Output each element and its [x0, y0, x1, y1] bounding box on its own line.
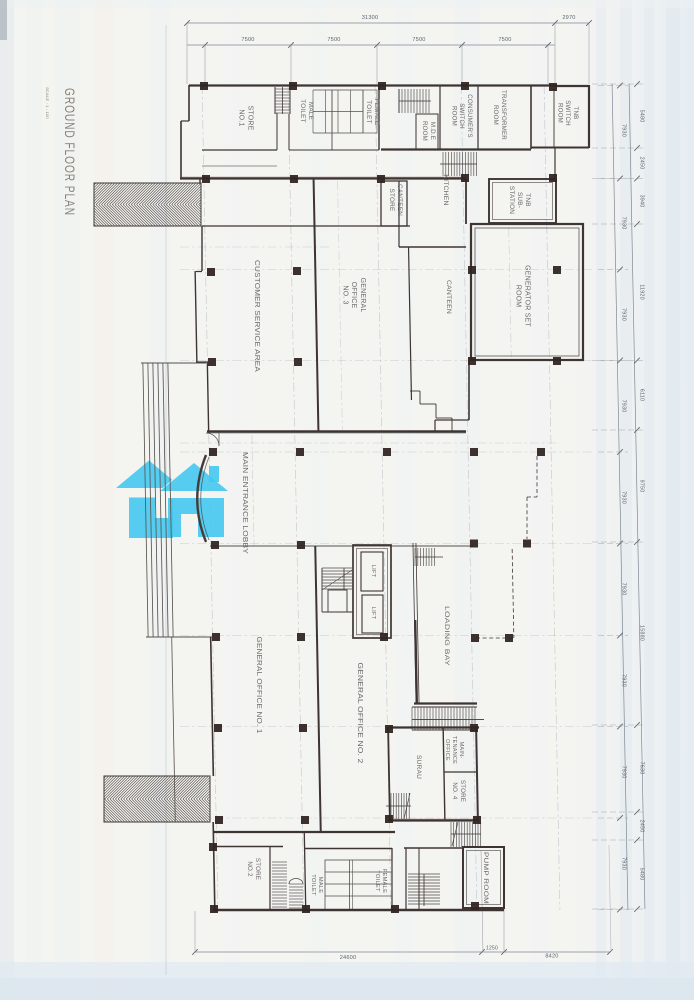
svg-text:7930: 7930	[621, 400, 627, 413]
svg-text:M.D.E: M.D.E	[429, 122, 436, 140]
svg-text:TNB: TNB	[524, 193, 531, 206]
svg-text:7500: 7500	[412, 37, 425, 43]
svg-text:STORE: STORE	[254, 858, 261, 880]
svg-text:5480: 5480	[639, 868, 645, 881]
svg-text:2970: 2970	[562, 15, 575, 21]
svg-text:TOILET: TOILET	[365, 100, 372, 123]
svg-text:1250: 1250	[486, 946, 498, 952]
svg-text:OFFICE: OFFICE	[350, 282, 357, 309]
svg-text:PUMP ROOM: PUMP ROOM	[482, 852, 489, 904]
svg-text:2450: 2450	[639, 820, 645, 833]
svg-text:TOILET: TOILET	[310, 874, 316, 896]
svg-text:TRANSFORMER: TRANSFORMER	[500, 90, 507, 140]
svg-text:6110: 6110	[639, 389, 645, 401]
svg-text:8420: 8420	[545, 954, 558, 960]
svg-text:ROOM: ROOM	[450, 106, 457, 126]
svg-text:KITCHEN: KITCHEN	[442, 174, 449, 205]
svg-text:3940: 3940	[639, 195, 645, 208]
svg-text:ROOM: ROOM	[421, 121, 428, 141]
svg-text:7930: 7930	[621, 308, 627, 321]
svg-text:24600: 24600	[340, 955, 357, 961]
svg-text:CUSTOMER SERVICE AREA: CUSTOMER SERVICE AREA	[253, 260, 262, 372]
svg-text:7500: 7500	[241, 37, 254, 43]
svg-text:SURAU: SURAU	[415, 755, 422, 779]
svg-text:STORE: STORE	[246, 106, 253, 131]
svg-text:SUB-: SUB-	[516, 192, 523, 208]
svg-text:2450: 2450	[639, 157, 645, 170]
svg-text:7630: 7630	[639, 762, 645, 775]
svg-text:7930: 7930	[621, 491, 627, 504]
svg-text:FEMALE: FEMALE	[373, 99, 380, 126]
svg-text:ROOM: ROOM	[515, 285, 522, 308]
svg-text:FEMALE: FEMALE	[381, 869, 387, 893]
svg-text:CANTEEN: CANTEEN	[445, 280, 452, 314]
svg-text:SWITCH: SWITCH	[564, 100, 571, 126]
svg-text:CONSUMER'S: CONSUMER'S	[466, 94, 473, 137]
svg-text:STORE: STORE	[459, 780, 466, 802]
svg-text:SWITCH: SWITCH	[458, 103, 465, 129]
svg-text:NO. 3: NO. 3	[341, 285, 348, 304]
svg-text:7930: 7930	[621, 674, 627, 687]
svg-text:NO.1: NO.1	[238, 109, 245, 126]
svg-text:NO.2: NO.2	[246, 861, 253, 877]
svg-text:LOADING BAY: LOADING BAY	[443, 606, 450, 666]
svg-text:LIFT: LIFT	[370, 565, 376, 578]
svg-text:ROOM: ROOM	[556, 103, 563, 123]
svg-text:7930: 7930	[621, 766, 627, 779]
svg-text:TENANCE: TENANCE	[451, 736, 457, 764]
svg-text:MAIN ENTRANCE LOBBY: MAIN ENTRANCE LOBBY	[241, 452, 248, 554]
svg-text:31300: 31300	[362, 15, 379, 21]
svg-text:7500: 7500	[498, 37, 511, 43]
svg-text:MALE: MALE	[307, 102, 314, 120]
svg-text:STORE: STORE	[388, 189, 395, 212]
svg-text:7930: 7930	[621, 124, 627, 137]
svg-text:LIFT: LIFT	[370, 607, 376, 620]
svg-text:11920: 11920	[639, 284, 645, 300]
svg-text:7930: 7930	[621, 857, 627, 870]
svg-text:7930: 7930	[621, 583, 627, 596]
svg-text:TOILET: TOILET	[299, 99, 306, 122]
svg-text:7500: 7500	[327, 37, 340, 43]
svg-text:9750: 9750	[639, 480, 645, 493]
svg-text:ROOM: ROOM	[492, 105, 499, 125]
svg-text:TOILET: TOILET	[374, 870, 380, 892]
svg-text:SCALE : 1 : 100: SCALE : 1 : 100	[45, 87, 50, 119]
svg-text:OFFICE: OFFICE	[444, 739, 450, 761]
svg-text:NO. 4: NO. 4	[451, 782, 458, 800]
svg-text:15880: 15880	[639, 625, 645, 641]
svg-text:7930: 7930	[621, 217, 627, 230]
svg-text:GENERAL OFFICE NO. 1: GENERAL OFFICE NO. 1	[255, 637, 262, 734]
svg-text:GENERATOR SET: GENERATOR SET	[523, 265, 530, 327]
svg-text:5480: 5480	[639, 110, 645, 123]
svg-text:STATION: STATION	[508, 186, 515, 214]
svg-text:GENERAL: GENERAL	[359, 278, 366, 313]
svg-text:CANTEEN: CANTEEN	[396, 184, 403, 216]
svg-text:MAIN-: MAIN-	[458, 742, 464, 759]
svg-text:TNB: TNB	[572, 107, 579, 120]
svg-text:GENERAL OFFICE NO. 2: GENERAL OFFICE NO. 2	[356, 663, 363, 764]
svg-text:MALE: MALE	[317, 877, 323, 894]
svg-text:GROUND FLOOR PLAN: GROUND FLOOR PLAN	[62, 88, 77, 216]
